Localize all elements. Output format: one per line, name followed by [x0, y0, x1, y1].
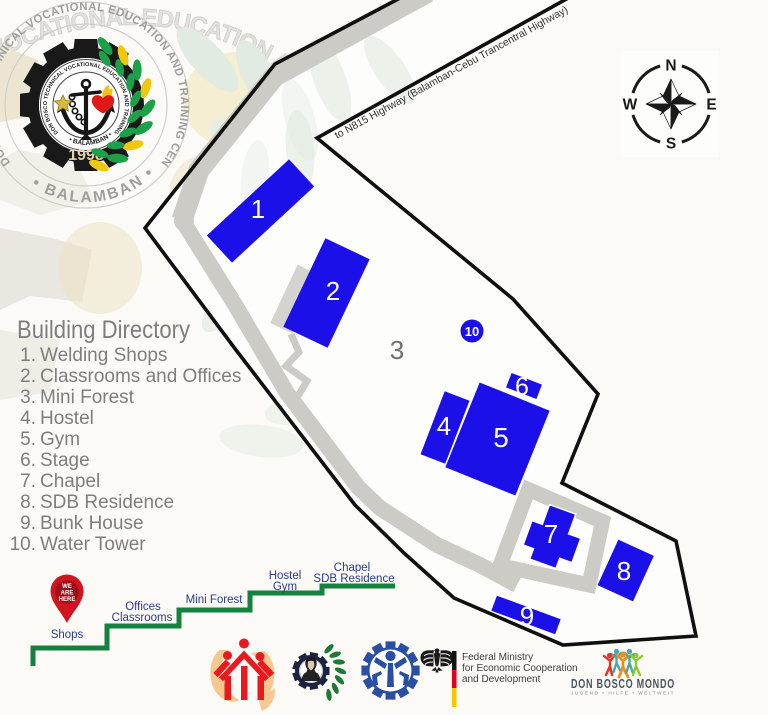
svg-text:9: 9 [520, 601, 534, 631]
svg-text:Shops: Shops [51, 629, 84, 641]
svg-text:4.: 4. [20, 408, 36, 429]
svg-text:HERE: HERE [59, 597, 76, 603]
svg-text:and Development: and Development [462, 674, 541, 685]
svg-text:7.: 7. [20, 471, 36, 492]
svg-text:2.: 2. [20, 366, 36, 387]
svg-text:8: 8 [617, 556, 631, 586]
svg-text:Mini Forest: Mini Forest [186, 594, 244, 606]
svg-text:Stage: Stage [40, 450, 90, 471]
svg-text:Gym: Gym [40, 429, 80, 450]
svg-text:Building Directory: Building Directory [17, 316, 190, 344]
svg-text:Water Tower: Water Tower [40, 534, 146, 555]
svg-text:Classrooms: Classrooms [112, 612, 173, 624]
svg-text:JUGEND • HILFE • WELTWEIT: JUGEND • HILFE • WELTWEIT [571, 691, 675, 696]
svg-text:4: 4 [437, 411, 451, 441]
svg-text:Gym: Gym [273, 581, 297, 593]
svg-text:1: 1 [251, 194, 265, 224]
svg-text:SDB Residence: SDB Residence [40, 492, 174, 513]
svg-text:5.: 5. [20, 429, 36, 450]
svg-text:ARE: ARE [61, 591, 74, 597]
svg-text:Classrooms and Offices: Classrooms and Offices [40, 366, 241, 387]
svg-text:2: 2 [326, 276, 340, 306]
svg-text:10.: 10. [10, 534, 36, 555]
svg-text:Chapel: Chapel [40, 471, 100, 492]
svg-text:10: 10 [465, 324, 479, 339]
svg-text:for Economic Cooperation: for Economic Cooperation [462, 663, 578, 674]
svg-text:9.: 9. [20, 513, 36, 534]
svg-text:1.: 1. [20, 345, 36, 366]
svg-text:S: S [666, 136, 676, 153]
svg-text:5: 5 [493, 422, 509, 453]
svg-text:WE: WE [62, 584, 72, 590]
svg-text:Welding Shops: Welding Shops [40, 345, 167, 366]
svg-text:3: 3 [390, 335, 404, 365]
svg-text:Hostel: Hostel [40, 408, 94, 429]
svg-text:SDB Residence: SDB Residence [313, 573, 394, 585]
svg-text:3.: 3. [20, 387, 36, 408]
svg-text:8.: 8. [20, 492, 36, 513]
svg-text:6: 6 [515, 373, 529, 401]
svg-text:Mini Forest: Mini Forest [40, 387, 135, 408]
svg-text:7: 7 [544, 519, 558, 549]
svg-text:DON BOSCO MONDO: DON BOSCO MONDO [571, 677, 675, 691]
svg-text:W: W [623, 97, 638, 114]
svg-text:Bunk House: Bunk House [40, 513, 144, 534]
svg-text:N: N [665, 58, 676, 75]
svg-text:E: E [706, 97, 716, 114]
svg-text:Federal Ministry: Federal Ministry [462, 652, 533, 663]
svg-text:6.: 6. [20, 450, 36, 471]
